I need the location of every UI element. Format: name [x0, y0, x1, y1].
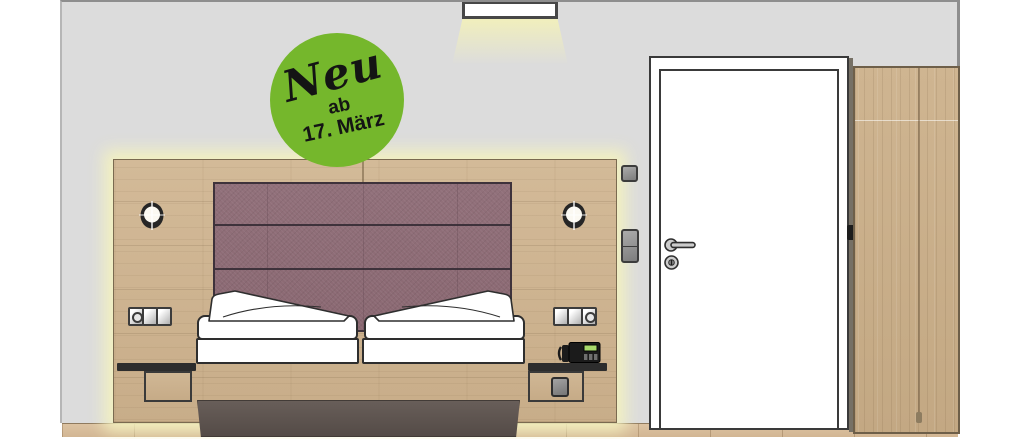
- wall-switch-double-icon: [621, 229, 639, 263]
- spotlight-left-icon: [139, 201, 165, 230]
- headboard-seam: [363, 184, 364, 330]
- door-handle-icon: [661, 235, 701, 275]
- bed-left-mattress: [196, 338, 359, 364]
- nightstand-shelf-right: [528, 363, 607, 371]
- wardrobe-grip-groove: [916, 412, 922, 423]
- switch-plate-right: [553, 307, 597, 326]
- power-socket-icon: [581, 307, 597, 326]
- bed-right-mattress: [362, 338, 525, 364]
- telephone-icon: [556, 341, 602, 364]
- wardrobe-door-seam: [918, 68, 920, 420]
- light-switch-icon: [156, 307, 172, 326]
- promo-badge: Neu ab 17. März: [270, 33, 404, 167]
- promo-badge-text: Neu ab 17. März: [279, 47, 395, 149]
- panel-seam-line: [362, 160, 364, 183]
- wardrobe: [853, 66, 960, 434]
- wardrobe-highlight-line: [855, 120, 958, 121]
- pillow-left-icon: [197, 289, 357, 323]
- bedside-socket-icon: [551, 377, 569, 397]
- nightstand-drawer-left: [144, 371, 192, 402]
- switch-plate-left: [128, 307, 172, 326]
- wall-switch-single-icon: [621, 165, 638, 182]
- bed-frame-front: [197, 400, 520, 437]
- pillow-right-icon: [366, 289, 526, 323]
- ceiling-light-glow: [452, 19, 568, 65]
- nightstand-shelf-left: [117, 363, 196, 371]
- hotel-room-elevation: Neu ab 17. März: [0, 0, 1024, 439]
- switch-divider: [623, 246, 637, 247]
- ceiling-light-fixture: [462, 2, 558, 19]
- spotlight-right-icon: [561, 201, 587, 230]
